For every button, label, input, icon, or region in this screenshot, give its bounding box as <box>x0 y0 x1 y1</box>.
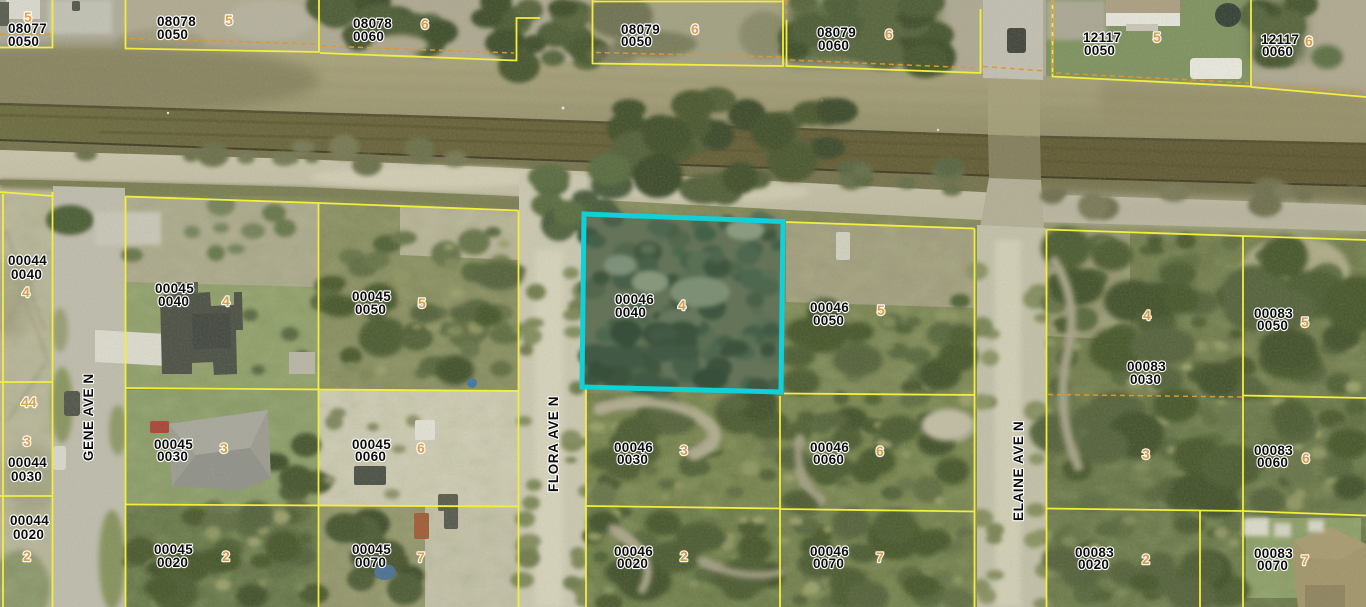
svg-text:0050: 0050 <box>8 34 39 49</box>
svg-text:0030: 0030 <box>1130 372 1161 387</box>
svg-text:0070: 0070 <box>813 556 844 571</box>
svg-text:3: 3 <box>23 433 31 449</box>
svg-text:00044: 00044 <box>8 455 47 470</box>
svg-text:0050: 0050 <box>1084 43 1115 58</box>
svg-text:6: 6 <box>417 440 425 456</box>
svg-text:0020: 0020 <box>157 555 188 570</box>
svg-text:2: 2 <box>23 548 31 564</box>
svg-text:0060: 0060 <box>1257 455 1288 470</box>
svg-text:0050: 0050 <box>813 313 844 328</box>
svg-text:4: 4 <box>678 297 686 313</box>
svg-text:0020: 0020 <box>1078 557 1109 572</box>
svg-text:6: 6 <box>1302 450 1310 466</box>
svg-text:ELAINE AVE N: ELAINE AVE N <box>1011 421 1026 521</box>
svg-text:0050: 0050 <box>355 302 386 317</box>
svg-text:0030: 0030 <box>11 469 42 484</box>
svg-text:5: 5 <box>24 9 32 25</box>
svg-text:4: 4 <box>1143 307 1151 323</box>
svg-text:7: 7 <box>417 549 425 565</box>
svg-text:0020: 0020 <box>617 556 648 571</box>
svg-text:0040: 0040 <box>158 294 189 309</box>
svg-text:5: 5 <box>225 12 233 28</box>
svg-text:GENE AVE N: GENE AVE N <box>81 373 96 461</box>
svg-text:44: 44 <box>21 394 37 410</box>
svg-text:7: 7 <box>876 549 884 565</box>
svg-text:0020: 0020 <box>13 527 44 542</box>
svg-text:4: 4 <box>22 284 30 300</box>
svg-text:0040: 0040 <box>615 305 646 320</box>
svg-text:0060: 0060 <box>1262 44 1293 59</box>
svg-text:5: 5 <box>418 295 426 311</box>
svg-text:0040: 0040 <box>11 267 42 282</box>
svg-text:0050: 0050 <box>621 34 652 49</box>
svg-text:2: 2 <box>222 548 230 564</box>
svg-text:0060: 0060 <box>353 29 384 44</box>
svg-text:3: 3 <box>1142 446 1150 462</box>
svg-text:6: 6 <box>876 443 884 459</box>
svg-text:0030: 0030 <box>157 449 188 464</box>
svg-text:6: 6 <box>885 26 893 42</box>
svg-text:2: 2 <box>680 548 688 564</box>
svg-text:5: 5 <box>1301 314 1309 330</box>
svg-text:7: 7 <box>1301 552 1309 568</box>
svg-text:0030: 0030 <box>617 452 648 467</box>
svg-text:6: 6 <box>691 21 699 37</box>
svg-text:6: 6 <box>1305 33 1313 49</box>
svg-text:00044: 00044 <box>8 253 47 268</box>
svg-text:2: 2 <box>1142 551 1150 567</box>
svg-text:0050: 0050 <box>1257 318 1288 333</box>
svg-text:0050: 0050 <box>157 27 188 42</box>
svg-text:0070: 0070 <box>1257 558 1288 573</box>
svg-text:5: 5 <box>877 302 885 318</box>
svg-text:00044: 00044 <box>10 513 49 528</box>
svg-text:0060: 0060 <box>813 452 844 467</box>
svg-text:3: 3 <box>680 442 688 458</box>
svg-text:5: 5 <box>1153 29 1161 45</box>
svg-text:6: 6 <box>421 16 429 32</box>
svg-text:4: 4 <box>222 293 230 309</box>
svg-text:0070: 0070 <box>355 555 386 570</box>
svg-text:0060: 0060 <box>818 38 849 53</box>
svg-text:0060: 0060 <box>355 449 386 464</box>
svg-text:3: 3 <box>220 440 228 456</box>
svg-text:FLORA AVE N: FLORA AVE N <box>546 396 561 492</box>
